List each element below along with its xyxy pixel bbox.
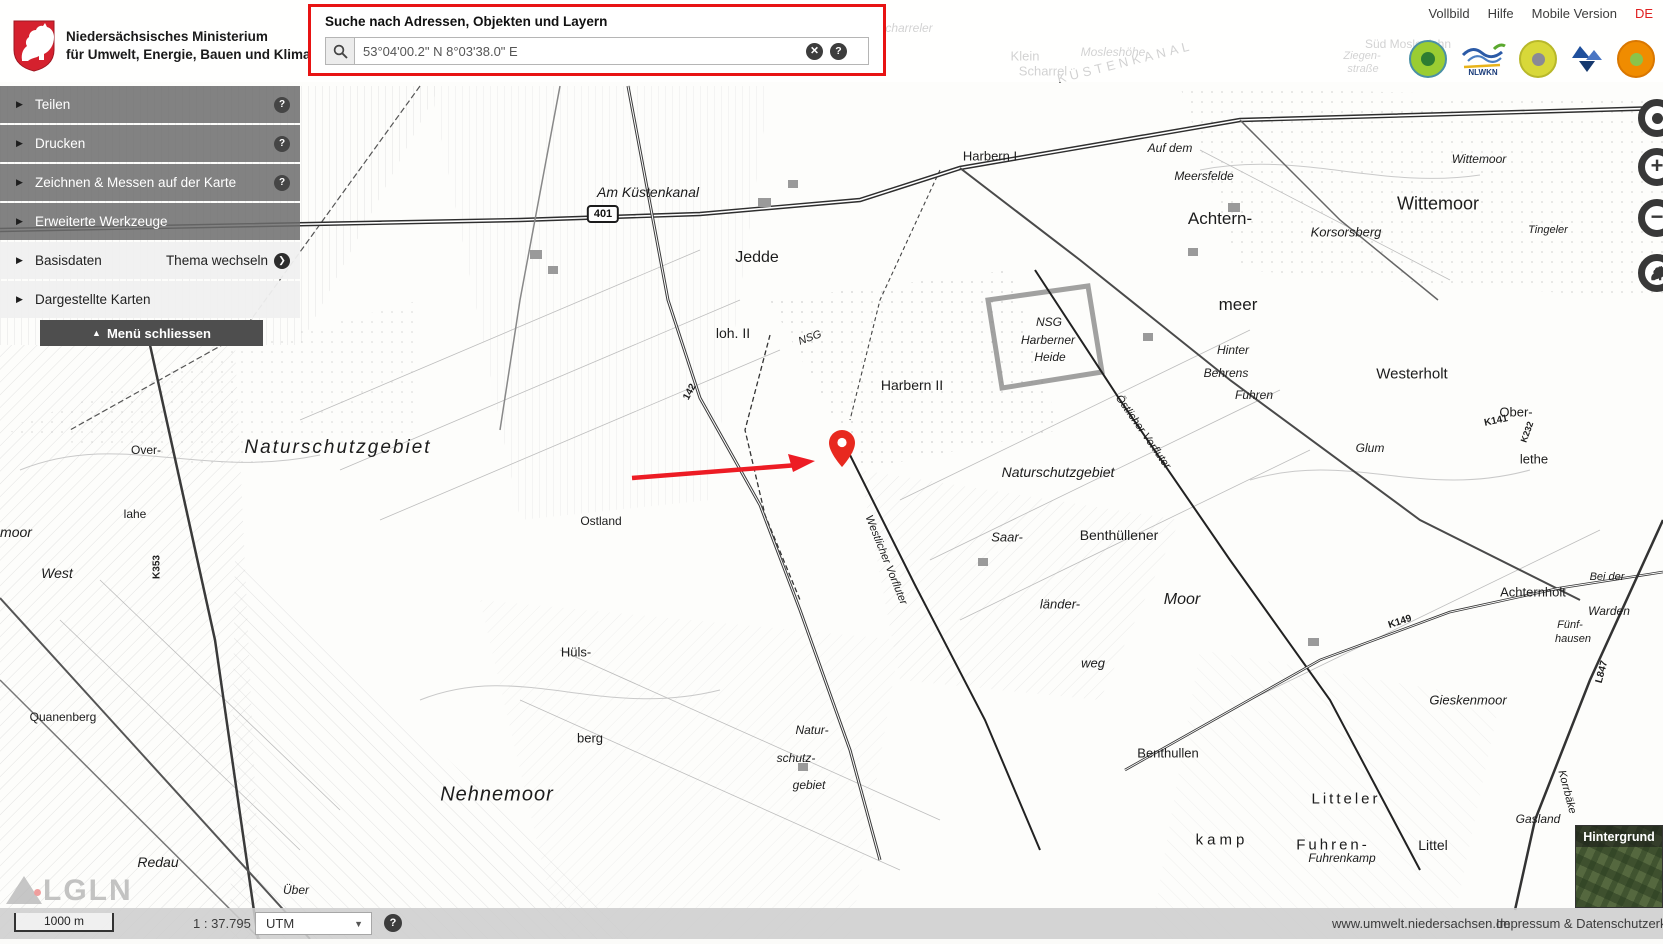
menu-close-button[interactable]: ▲ Menü schliessen: [40, 320, 263, 346]
help-icon[interactable]: ?: [274, 136, 290, 152]
projection-value: UTM: [266, 916, 294, 931]
ministry-logo-block[interactable]: Niedersächsisches Ministerium für Umwelt…: [12, 20, 353, 72]
expand-arrow-icon: ▶: [16, 294, 23, 305]
green-circle-logo[interactable]: [1409, 40, 1447, 78]
svg-text:NLWKN: NLWKN: [1468, 68, 1498, 77]
projection-select[interactable]: UTM ▼: [255, 912, 372, 935]
lgln-watermark: LGLN: [6, 876, 133, 904]
sidebar-item-label: Dargestellte Karten: [35, 292, 151, 307]
theme-switch-link[interactable]: Thema wechseln: [166, 253, 268, 268]
search-help-icon[interactable]: ?: [830, 43, 847, 60]
expand-arrow-icon: ▶: [16, 255, 23, 266]
partner-logo-row: NLWKN: [1409, 40, 1655, 78]
sidebar-item-label: Erweiterte Werkzeuge: [35, 214, 168, 229]
expand-arrow-icon: ▶: [16, 99, 23, 110]
sidebar-item-label: Drucken: [35, 136, 85, 151]
orange-circle-logo-dot: [1630, 53, 1643, 66]
sidebar-item-basisdaten[interactable]: ▶ Basisdaten Thema wechseln ❯: [0, 242, 300, 279]
sidebar-item-erweiterte-werkzeuge[interactable]: ▶ Erweiterte Werkzeuge: [0, 203, 300, 240]
status-bar: 1000 m 1 : 37.795 UTM ▼ ? www.umwelt.nie…: [0, 908, 1663, 939]
sidebar-menu: ▶ Teilen ? ▶ Drucken ? ▶ Zeichnen & Mess…: [0, 86, 300, 320]
locate-dot-icon: [1652, 113, 1663, 124]
sidebar-item-label: Basisdaten: [35, 253, 102, 268]
help-icon[interactable]: ?: [274, 97, 290, 113]
background-switcher-label: Hintergrund: [1576, 826, 1662, 847]
scale-bar: 1000 m: [14, 913, 114, 932]
sidebar-item-label: Zeichnen & Messen auf der Karte: [35, 175, 236, 190]
sidebar-item-zeichnen-messen[interactable]: ▶ Zeichnen & Messen auf der Karte ?: [0, 164, 300, 201]
road-number-badge: 401: [587, 205, 619, 223]
menu-close-label: Menü schliessen: [107, 326, 211, 341]
lower-saxony-horse-icon: [1649, 266, 1663, 281]
chevron-right-icon[interactable]: ❯: [274, 253, 290, 269]
dropdown-caret-icon: ▼: [354, 919, 363, 929]
link-language-de[interactable]: DE: [1635, 6, 1653, 21]
link-hilfe[interactable]: Hilfe: [1488, 6, 1514, 21]
collapse-arrow-icon: ▲: [92, 328, 101, 338]
search-icon: [333, 44, 348, 59]
search-clear-icon[interactable]: ✕: [806, 43, 823, 60]
search-label: Suche nach Adressen, Objekten und Layern: [325, 14, 607, 29]
header-links: Vollbild Hilfe Mobile Version DE: [1428, 6, 1653, 21]
orange-circle-logo[interactable]: [1617, 40, 1655, 78]
footer-help-icon[interactable]: ?: [384, 914, 402, 932]
blue-triangles-logo[interactable]: [1570, 42, 1604, 76]
search-input[interactable]: [355, 37, 869, 65]
search-row: [325, 37, 869, 65]
yellow-circle-logo[interactable]: [1519, 40, 1557, 78]
lgln-text: LGLN: [43, 878, 133, 904]
expand-arrow-icon: ▶: [16, 177, 23, 188]
imprint-link[interactable]: Impressum & Datenschutzerklärung: [1496, 916, 1663, 931]
background-switcher[interactable]: Hintergrund: [1575, 825, 1663, 908]
yellow-circle-logo-dot: [1532, 53, 1545, 66]
sidebar-item-label: Teilen: [35, 97, 70, 112]
help-icon[interactable]: ?: [274, 175, 290, 191]
expand-arrow-icon: ▶: [16, 216, 23, 227]
sidebar-item-drucken[interactable]: ▶ Drucken ?: [0, 125, 300, 162]
plus-icon: +: [1651, 155, 1663, 177]
link-mobile-version[interactable]: Mobile Version: [1532, 6, 1617, 21]
search-icon-box[interactable]: [325, 37, 355, 65]
scale-ratio: 1 : 37.795: [193, 916, 251, 931]
lgln-dot-icon: [34, 889, 41, 896]
minus-icon: −: [1651, 206, 1663, 228]
search-panel: Suche nach Adressen, Objekten und Layern…: [308, 4, 886, 76]
sidebar-item-dargestellte-karten[interactable]: ▶ Dargestellte Karten: [0, 281, 300, 318]
expand-arrow-icon: ▶: [16, 138, 23, 149]
sidebar-item-teilen[interactable]: ▶ Teilen ?: [0, 86, 300, 123]
nlwkn-logo[interactable]: NLWKN: [1460, 41, 1506, 77]
site-link[interactable]: www.umwelt.niedersachsen.de: [1332, 916, 1510, 931]
link-vollbild[interactable]: Vollbild: [1428, 6, 1469, 21]
lower-saxony-coat-of-arms-icon: [12, 20, 56, 72]
green-circle-logo-dot: [1421, 52, 1435, 66]
